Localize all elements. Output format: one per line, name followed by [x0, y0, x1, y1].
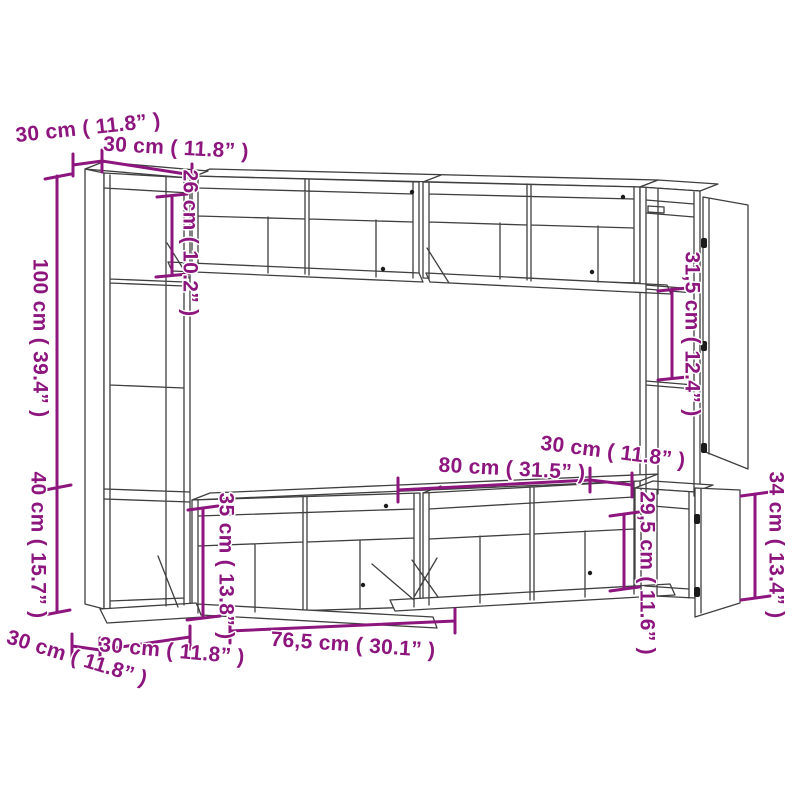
knob: [381, 267, 385, 271]
dim-label-inner-right-height: 31,5 cm ( 12.4” ): [681, 251, 704, 416]
door-hinge: [701, 238, 707, 248]
door-hinge: [694, 514, 700, 524]
left-column-side-panel: [85, 169, 104, 609]
dim-label-bottom-stand-width: 76,5 cm ( 30.1” ): [270, 628, 436, 662]
product-dimension-diagram: 30 cm ( 11.8” ) 30 cm ( 11.8” ) 100 cm (…: [0, 0, 800, 800]
knob: [588, 571, 592, 575]
diagram-canvas: 30 cm ( 11.8” ) 30 cm ( 11.8” ) 100 cm (…: [0, 0, 800, 800]
dim-label-top-width: 30 cm ( 11.8” ): [103, 133, 250, 164]
door-hinge: [694, 587, 700, 597]
knob: [410, 190, 414, 194]
dim-label-stand-width: 80 cm ( 31.5” ): [438, 454, 586, 485]
door-hinge: [701, 443, 707, 453]
dim-label-inner-lower-left-height: 35 cm ( 13.8” ): [215, 493, 238, 640]
dim-label-inner-lower-right-height: 29,5 cm ( 11.6” ): [636, 491, 659, 655]
dim-label-left-height-upper: 100 cm ( 39.4” ): [29, 259, 52, 418]
knob: [621, 195, 625, 199]
left-column-front: [104, 173, 190, 609]
knob: [361, 583, 365, 587]
dim-label-right-cabinet-height: 34 cm ( 13.4” ): [765, 472, 788, 619]
right-tall-cabinet-open-door: [703, 197, 748, 469]
right-low-cabinet-open-door: [695, 488, 740, 617]
knob: [384, 504, 388, 508]
knob: [590, 270, 594, 274]
dim-label-left-height-lower: 40 cm ( 15.7” ): [27, 472, 50, 619]
dim-label-inner-top-left-height: 26 cm ( 10.2” ): [179, 170, 202, 317]
